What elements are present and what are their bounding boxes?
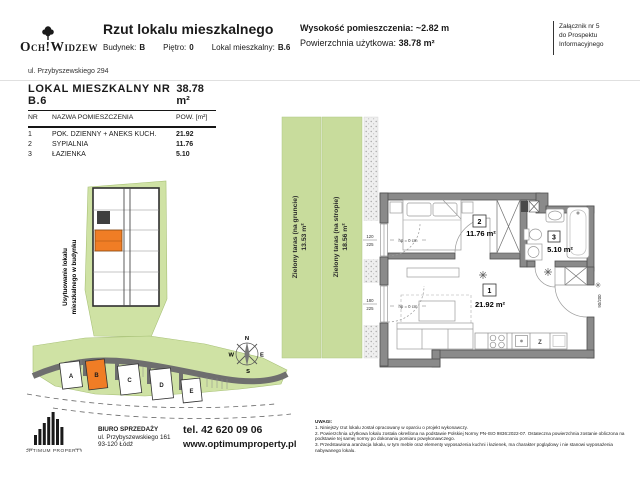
brand-logo: Och!Widzew	[20, 39, 98, 55]
terrace-slab-area: 18.56 m²	[342, 223, 349, 251]
table-row: 3 ŁAZIENKA 5.10	[28, 148, 216, 158]
table-row: 1 POK. DZIENNY + ANEKS KUCH. 21.92	[28, 128, 216, 138]
unit-table-title: LOKAL MIESZKALNY NR B.6	[28, 83, 176, 107]
entry-door-dimension: 90/200	[597, 294, 602, 308]
office-address: ul. Przybyszewskiego 161	[98, 434, 170, 442]
website-link[interactable]: www.optimumproperty.pl	[183, 439, 296, 450]
area-label: Powierzchnia użytkowa:	[300, 38, 396, 48]
fridge	[553, 336, 565, 347]
table-row: 2 SYPIALNIA 11.76	[28, 138, 216, 148]
height-value: ~2.82 m	[416, 23, 449, 33]
vent-icon	[595, 282, 601, 288]
building-locator-diagram: Usytuowanie lokalu mieszkalnego w budynk…	[55, 178, 180, 353]
entry-door	[555, 285, 587, 317]
apartment-floor-plan: Zielony taras (na gruncie) 13.53 m² Ziel…	[280, 85, 640, 415]
note-line: 3. Przedstawiona aranżacja lokalu, w tym…	[315, 442, 637, 454]
note-line: 2. Powierzchnia użytkowa lokalu została …	[315, 431, 637, 443]
street-address: ul. Przybyszewskiego 294	[28, 68, 109, 75]
kitchen-counter	[475, 333, 567, 349]
toilet-bowl	[530, 229, 542, 240]
bathroom-door	[535, 267, 555, 287]
row-name: POK. DZIENNY + ANEKS KUCH.	[52, 131, 176, 138]
optimum-property-logo: OPTIMUM PROPERTY	[26, 412, 82, 454]
sales-office: BIURO SPRZEDAŻY ul. Przybyszewskiego 161…	[98, 426, 170, 449]
col-name: NAZWA POMIESZCZENIA	[52, 114, 176, 121]
kitchen-z-label: Z	[538, 340, 542, 346]
compass-e: E	[260, 353, 264, 359]
row-area: 21.92	[176, 131, 216, 138]
hp-label: hp = 0 cm	[399, 304, 418, 309]
locator-caption: mieszkalnego w budynku	[71, 239, 78, 314]
terrace-ground-label: Zielony taras (na gruncie)	[292, 196, 299, 279]
compass-n: N	[245, 336, 249, 342]
floor-value: 0	[189, 43, 193, 52]
window2-height: 225	[366, 306, 374, 311]
toilet-tank	[524, 229, 529, 240]
table-header: NR NAZWA POMIESZCZENIA POW. [m²]	[28, 111, 216, 123]
compass-w: W	[229, 353, 235, 359]
building-label-b: B	[94, 373, 99, 379]
locator-caption: Usytuowanie lokalu	[62, 248, 69, 306]
office-title: BIURO SPRZEDAŻY	[98, 426, 170, 434]
logo-bars	[34, 412, 63, 445]
tv-cabinet	[407, 268, 459, 277]
window2-width: 180	[366, 298, 374, 303]
attachment-line: Informacyjnego	[559, 40, 603, 49]
highlighted-unit	[95, 230, 122, 251]
floor-label: Piętro:	[163, 43, 186, 52]
compass-s: S	[246, 369, 250, 375]
nightstand	[390, 202, 402, 213]
room1-number: 1	[488, 288, 492, 295]
header-rule	[0, 80, 640, 81]
area-value: 38.78 m²	[399, 38, 435, 48]
row-name: ŁAZIENKA	[52, 151, 176, 158]
logo-wordmark: OPTIMUM PROPERTY	[26, 448, 82, 454]
pillow	[433, 203, 457, 216]
building-label-e: E	[189, 389, 193, 395]
room3-area: 5.10 m²	[547, 245, 573, 254]
window1-height: 225	[366, 242, 374, 247]
nightstand	[462, 202, 473, 213]
sofa	[397, 323, 473, 349]
coffee-table	[419, 301, 455, 321]
unit-label: Lokal mieszkalny:	[212, 43, 275, 52]
room2-number: 2	[478, 219, 482, 226]
attachment-line: do Prospektu	[559, 31, 603, 40]
attachment-line: Załącznik nr 5	[559, 22, 603, 31]
bedroom-wardrobe	[497, 200, 520, 253]
col-pow: POW. [m²]	[176, 114, 216, 121]
terrace-slab-label: Zielony taras (na stropie)	[333, 197, 340, 278]
unit-table-total-area: 38.78 m²	[176, 83, 216, 107]
locator-building-outline	[93, 188, 159, 306]
room-height: Wysokość pomieszczenia: ~2.82 m	[300, 23, 449, 33]
hall-wardrobe	[565, 267, 587, 285]
shaft-block	[521, 201, 528, 212]
unit-table: LOKAL MIESZKALNY NR B.6 38.78 m² NR NAZW…	[28, 83, 216, 158]
contact-block: tel. 42 620 09 06 www.optimumproperty.pl	[183, 424, 296, 450]
height-label: Wysokość pomieszczenia:	[300, 23, 413, 33]
vent-icon	[544, 268, 552, 276]
page: Och!Widzew Rzut lokalu mieszkalnego Budy…	[0, 0, 640, 480]
attachment-divider	[553, 21, 554, 55]
stairwell-block	[97, 211, 110, 224]
pillow	[407, 203, 431, 216]
room3-number: 3	[552, 235, 556, 242]
unit-value: B.6	[278, 43, 290, 52]
building-label-a: A	[69, 374, 74, 380]
col-nr: NR	[28, 114, 52, 121]
duct-box	[529, 201, 539, 212]
notes-block: UWAGI: 1. Niniejszy rzut lokalu został o…	[315, 419, 637, 454]
hp-label: hp = 0 cm	[399, 238, 418, 243]
phone-number: tel. 42 620 09 06	[183, 424, 296, 436]
building-value: B	[139, 43, 145, 52]
room1-area: 21.92 m²	[475, 300, 506, 309]
row-area: 11.76	[176, 141, 216, 148]
office-city: 93-120 Łódź	[98, 441, 170, 449]
terrace-ground-area: 13.53 m²	[301, 223, 308, 251]
row-nr: 3	[28, 151, 52, 158]
building-label: Budynek:	[103, 43, 136, 52]
usable-area: Powierzchnia użytkowa: 38.78 m²	[300, 38, 435, 48]
building-label-d: D	[159, 383, 164, 389]
window1-width: 120	[366, 234, 374, 239]
building-label-c: C	[127, 378, 132, 384]
row-name: SYPIALNIA	[52, 141, 176, 148]
row-nr: 1	[28, 131, 52, 138]
row-nr: 2	[28, 141, 52, 148]
attachment-note: Załącznik nr 5 do Prospektu Informacyjne…	[559, 22, 603, 49]
page-title: Rzut lokalu mieszkalnego	[103, 21, 273, 37]
room2-area: 11.76 m²	[466, 229, 496, 238]
unit-meta: Budynek:B Piętro:0 Lokal mieszkalny:B.6	[103, 43, 290, 52]
vent-icon	[479, 271, 487, 279]
row-area: 5.10	[176, 151, 216, 158]
